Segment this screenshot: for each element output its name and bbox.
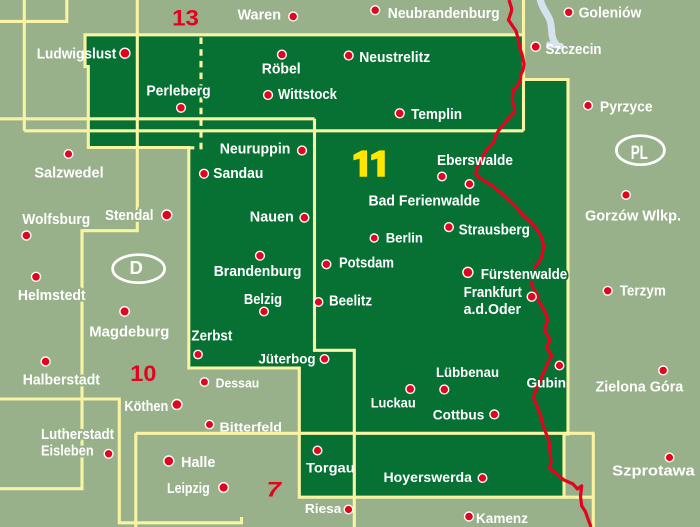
svg-text:Beelitz: Beelitz bbox=[329, 293, 372, 310]
svg-text:Hoyerswerda: Hoyerswerda bbox=[384, 469, 473, 485]
svg-text:Templin: Templin bbox=[411, 106, 462, 123]
svg-text:Neustrelitz: Neustrelitz bbox=[359, 49, 430, 66]
svg-text:Pyrzyce: Pyrzyce bbox=[600, 98, 653, 115]
svg-text:Potsdam: Potsdam bbox=[339, 255, 394, 272]
svg-text:Röbel: Röbel bbox=[262, 61, 301, 78]
svg-text:PL: PL bbox=[631, 143, 648, 164]
svg-text:Sandau: Sandau bbox=[213, 165, 263, 182]
svg-text:Riesa: Riesa bbox=[305, 501, 342, 516]
svg-text:Perleberg: Perleberg bbox=[146, 83, 210, 100]
svg-text:Szprotawa: Szprotawa bbox=[612, 463, 695, 480]
svg-text:Goleniów: Goleniów bbox=[579, 5, 642, 22]
svg-text:13: 13 bbox=[172, 5, 199, 30]
svg-text:Torgau: Torgau bbox=[306, 459, 355, 475]
svg-text:Neuruppin: Neuruppin bbox=[220, 141, 291, 158]
svg-text:Zerbst: Zerbst bbox=[191, 328, 232, 345]
svg-text:Terzym: Terzym bbox=[620, 283, 666, 300]
svg-text:Halberstadt: Halberstadt bbox=[23, 371, 100, 388]
svg-text:Fürstenwalde: Fürstenwalde bbox=[481, 266, 568, 283]
svg-text:Cottbus: Cottbus bbox=[433, 407, 485, 423]
svg-text:Nauen: Nauen bbox=[250, 209, 294, 226]
svg-text:Waren: Waren bbox=[238, 7, 282, 24]
svg-text:Dessau: Dessau bbox=[216, 375, 260, 390]
svg-text:Eisleben: Eisleben bbox=[41, 443, 94, 460]
svg-text:Jüterbog: Jüterbog bbox=[259, 351, 316, 367]
svg-text:Strausberg: Strausberg bbox=[459, 222, 530, 239]
svg-text:a.d.Oder: a.d.Oder bbox=[464, 301, 521, 318]
svg-text:D: D bbox=[130, 257, 143, 278]
svg-text:Kamenz: Kamenz bbox=[476, 510, 528, 526]
svg-text:Belzig: Belzig bbox=[244, 291, 282, 308]
svg-text:Leipzig: Leipzig bbox=[167, 480, 210, 497]
svg-text:Stendal: Stendal bbox=[105, 207, 154, 224]
svg-text:Magdeburg: Magdeburg bbox=[89, 323, 169, 340]
svg-text:Gubin: Gubin bbox=[527, 375, 567, 391]
svg-text:Zielona Góra: Zielona Góra bbox=[596, 378, 684, 395]
svg-text:Eberswalde: Eberswalde bbox=[437, 152, 513, 169]
svg-text:10: 10 bbox=[130, 361, 156, 386]
svg-text:Helmstedt: Helmstedt bbox=[18, 287, 86, 304]
svg-text:Wittstock: Wittstock bbox=[278, 86, 337, 103]
svg-text:Neubrandenburg: Neubrandenburg bbox=[388, 5, 500, 22]
svg-text:Szczecin: Szczecin bbox=[546, 41, 602, 58]
svg-text:Lübbenau: Lübbenau bbox=[436, 364, 499, 380]
svg-text:Luckau: Luckau bbox=[371, 395, 416, 411]
svg-text:Berlin: Berlin bbox=[386, 229, 423, 245]
svg-text:Wolfsburg: Wolfsburg bbox=[22, 211, 90, 228]
svg-text:Ludwigslust: Ludwigslust bbox=[37, 45, 117, 62]
svg-text:Lutherstadt: Lutherstadt bbox=[41, 426, 114, 443]
svg-text:Brandenburg: Brandenburg bbox=[214, 263, 302, 280]
svg-text:Frankfurt: Frankfurt bbox=[464, 284, 522, 301]
svg-text:Salzwedel: Salzwedel bbox=[34, 164, 103, 181]
svg-text:Halle: Halle bbox=[181, 454, 215, 471]
svg-text:Köthen: Köthen bbox=[124, 398, 168, 415]
svg-text:7: 7 bbox=[267, 478, 283, 502]
svg-text:Bitterfeld: Bitterfeld bbox=[220, 420, 283, 435]
svg-text:Gorzów Wlkp.: Gorzów Wlkp. bbox=[585, 208, 681, 225]
svg-text:Bad Ferienwalde: Bad Ferienwalde bbox=[369, 193, 481, 210]
